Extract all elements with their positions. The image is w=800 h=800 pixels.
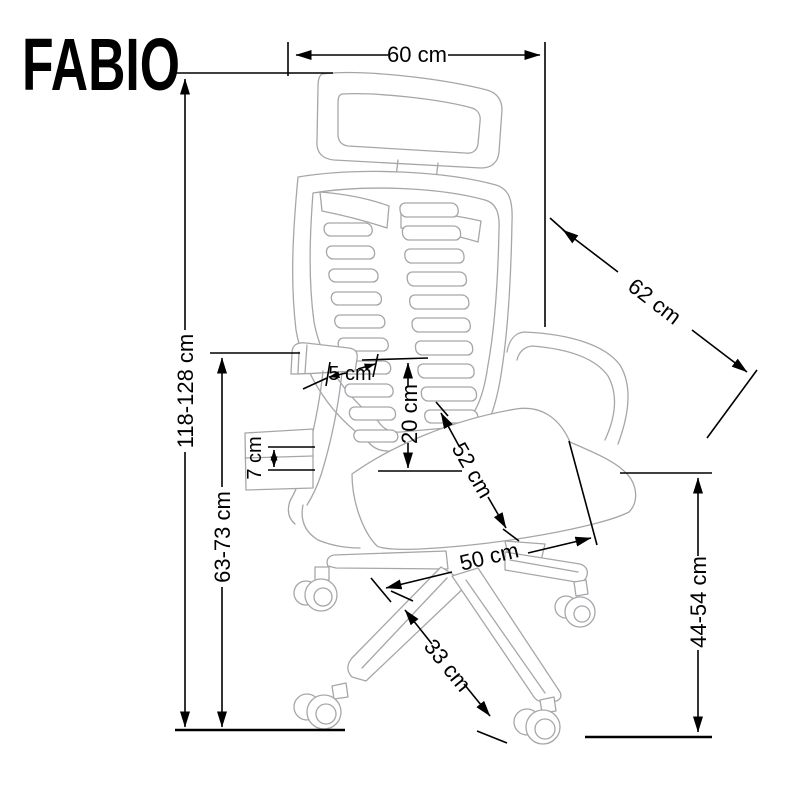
dimension-base-height: 44-54 cm xyxy=(620,473,712,732)
dim-label-20cm: 20 cm xyxy=(397,384,422,444)
caster-rear-right xyxy=(555,580,595,627)
product-title: FABIO xyxy=(22,23,180,106)
dimension-seat-height: 63-73 cm xyxy=(210,353,300,727)
headrest xyxy=(317,73,502,180)
dimension-total-height: 118-128 cm xyxy=(170,73,333,727)
dim-label-62cm: 62 cm xyxy=(623,273,686,329)
diagram-svg: 60 cm 118-128 cm 62 cm 63-73 cm 7 cm 5 c xyxy=(0,0,800,800)
caster-rear-left xyxy=(294,567,337,611)
caster-front-right xyxy=(514,697,560,744)
dim-label-5cm: 5 cm xyxy=(328,363,371,385)
dim-label-44-54cm: 44-54 cm xyxy=(686,556,711,648)
dim-label-60cm: 60 cm xyxy=(387,42,447,67)
dim-label-7cm: 7 cm xyxy=(244,436,266,479)
dimension-backrest-diagonal: 62 cm xyxy=(550,218,757,438)
caster-front-left xyxy=(294,683,348,729)
chair-dimension-diagram: 60 cm 118-128 cm 62 cm 63-73 cm 7 cm 5 c xyxy=(0,0,800,800)
dim-label-33cm: 33 cm xyxy=(419,634,476,696)
dim-label-63-73cm: 63-73 cm xyxy=(210,491,235,583)
dim-label-118-128cm: 118-128 cm xyxy=(173,334,198,449)
base-leg-rear-left xyxy=(327,551,448,569)
